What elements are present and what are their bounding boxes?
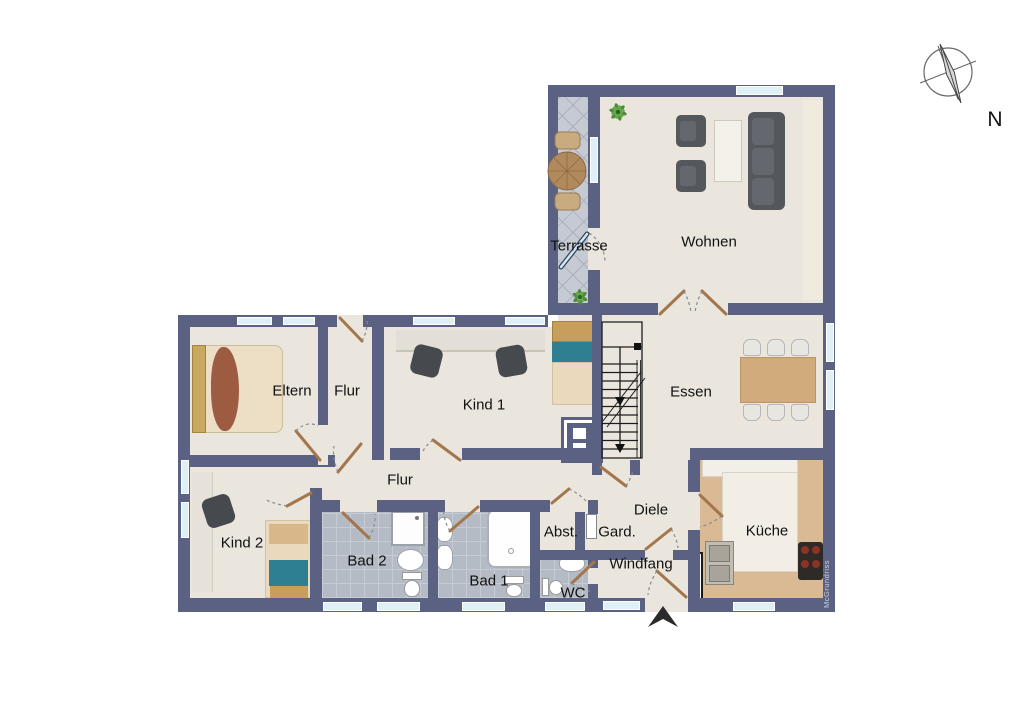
bed-parents-headboard xyxy=(192,345,206,433)
dining-chair xyxy=(767,339,785,356)
wall xyxy=(310,488,322,512)
wall xyxy=(592,460,602,475)
window xyxy=(237,317,272,325)
dining-chair xyxy=(743,404,761,421)
chimney-flue xyxy=(573,428,586,439)
bed-child2-blanket xyxy=(269,560,308,586)
window xyxy=(462,602,505,611)
wall xyxy=(548,85,558,315)
room-label-kind1: Kind 1 xyxy=(463,397,506,414)
bed-child1-pillow xyxy=(552,342,595,362)
room-label-terrasse: Terrasse xyxy=(550,238,608,255)
room-label-wohnen: Wohnen xyxy=(681,234,737,251)
wall xyxy=(588,500,598,514)
door-opening xyxy=(550,500,588,512)
toilet-tank xyxy=(542,578,549,596)
room-label-abst: Abst. xyxy=(544,524,578,541)
room-label-kind2: Kind 2 xyxy=(221,535,264,552)
compass-icon xyxy=(920,44,976,103)
bed-child1-mattress xyxy=(552,362,595,405)
room-label-gard: Gard. xyxy=(598,524,636,541)
coffee-table xyxy=(714,120,742,182)
wall xyxy=(673,550,688,560)
bed-parents-blanket xyxy=(211,347,239,431)
room-label-flur-oben: Flur xyxy=(334,383,360,400)
door-opening xyxy=(420,448,462,460)
window xyxy=(736,86,783,95)
sink xyxy=(436,517,453,542)
armchair-cushion xyxy=(680,121,696,141)
stove-burner xyxy=(801,560,809,568)
kitchen-sink-basin xyxy=(709,565,730,582)
shower-drain xyxy=(415,516,419,520)
wall xyxy=(530,512,540,598)
door-opening xyxy=(318,425,328,465)
room-label-flur: Flur xyxy=(387,472,413,489)
wall xyxy=(690,448,835,460)
terrace-floor xyxy=(558,97,588,303)
window xyxy=(181,502,189,538)
room-label-bad2: Bad 2 xyxy=(347,553,386,570)
wall xyxy=(372,327,384,460)
watermark: McGrundriss xyxy=(822,516,836,608)
wall xyxy=(178,455,335,467)
wall xyxy=(688,460,700,492)
toilet-bowl xyxy=(404,580,420,597)
window xyxy=(181,460,189,494)
room-label-diele: Diele xyxy=(634,502,668,519)
window xyxy=(545,602,585,611)
sofa-cushion xyxy=(752,118,774,145)
dining-chair xyxy=(791,339,809,356)
window xyxy=(826,323,834,362)
sofa-cushion xyxy=(752,148,774,175)
wall xyxy=(592,315,602,460)
bathtub-drain xyxy=(508,548,514,554)
sideboard xyxy=(803,100,822,300)
desk xyxy=(192,472,213,592)
wall xyxy=(588,558,598,568)
floor-plan: Terrasse Wohnen Eltern Flur Kind 1 Essen… xyxy=(0,0,1024,724)
armchair-cushion xyxy=(680,166,696,186)
room-label-bad1: Bad 1 xyxy=(469,573,508,590)
sink xyxy=(436,545,453,570)
room-label-wc: WC xyxy=(561,585,586,602)
door-opening xyxy=(658,303,728,315)
wall xyxy=(428,512,438,598)
wall xyxy=(178,315,548,327)
stove-burner xyxy=(812,546,820,554)
wardrobe-shelf xyxy=(586,514,597,539)
room-label-kueche: Küche xyxy=(746,523,789,540)
bed-child2-footboard xyxy=(270,586,308,598)
sofa-cushion xyxy=(752,178,774,205)
wall xyxy=(548,85,835,97)
window xyxy=(603,601,640,610)
room-label-windfang: Windfang xyxy=(609,556,672,573)
entrance-opening xyxy=(645,598,688,612)
bed-child1-headboard xyxy=(552,321,595,342)
bed-child2-pillow xyxy=(269,524,308,544)
door-opening xyxy=(340,500,377,512)
wall xyxy=(310,512,322,598)
shower xyxy=(391,511,425,546)
toilet-tank xyxy=(402,572,422,580)
room-label-eltern: Eltern xyxy=(272,383,311,400)
room-label-essen: Essen xyxy=(670,384,712,401)
office-chair xyxy=(495,344,529,379)
door-opening xyxy=(445,500,480,512)
door-opening xyxy=(688,492,700,530)
wall xyxy=(630,460,640,475)
stove-burner xyxy=(812,560,820,568)
door-opening xyxy=(337,315,363,327)
window xyxy=(283,317,315,325)
window xyxy=(733,602,775,611)
window xyxy=(323,602,362,611)
dining-table xyxy=(740,357,816,403)
window xyxy=(590,137,598,183)
window xyxy=(377,602,420,611)
compass-north-label: N xyxy=(987,108,1002,132)
bathtub xyxy=(487,509,536,568)
wall xyxy=(688,530,700,598)
wall xyxy=(588,97,600,303)
window xyxy=(413,317,455,325)
window xyxy=(826,370,834,410)
kitchen-sink-basin xyxy=(709,545,730,562)
wall xyxy=(588,584,598,600)
dining-chair xyxy=(767,404,785,421)
stove-burner xyxy=(801,546,809,554)
sink xyxy=(397,549,424,571)
dining-chair xyxy=(743,339,761,356)
dining-chair xyxy=(791,404,809,421)
window xyxy=(505,317,545,325)
